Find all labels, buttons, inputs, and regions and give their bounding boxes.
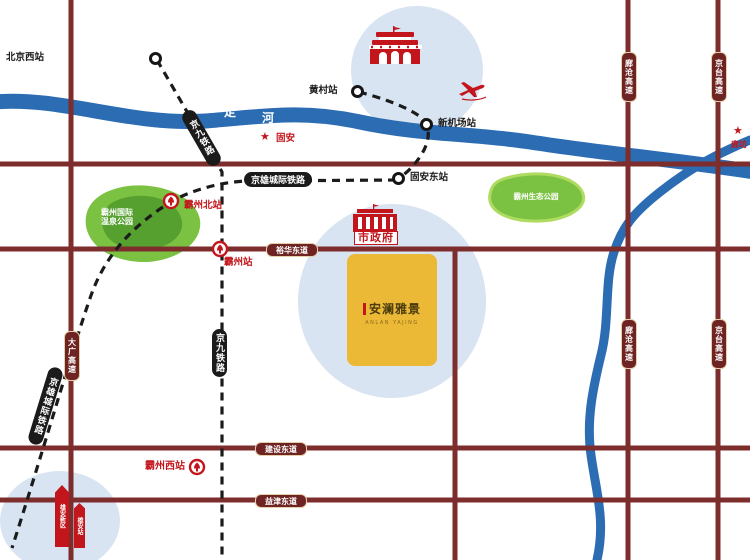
road-capsule-jingtai-south: 京台高速 [711, 319, 727, 369]
railway-station-icon-bazhou-north [162, 192, 180, 210]
project-name: 安澜雅景 [369, 300, 421, 317]
rail-capsule-jingxiong-east: 京雄城际铁路 [244, 172, 312, 187]
city-gov-icon [352, 204, 398, 232]
city-label-guan: 固安 [276, 134, 295, 144]
xiongan-banner-2-label: 雄安站 [75, 517, 84, 535]
rail-capsule-jingjiu-south: 京九铁路 [212, 329, 227, 377]
star-langfang-icon: ★ [733, 125, 743, 137]
city-label-langfang: 廊坊 [731, 141, 747, 150]
river-label-char-2: 定 [224, 106, 236, 119]
project-block: 安澜雅景 ANLAN YAJING [347, 254, 437, 366]
xiongan-banner-2: 雄安站 [74, 503, 85, 548]
park-label-hot-spring: 霸州国际 温泉公园 [88, 209, 146, 227]
road-capsule-jianshe: 建设东道 [255, 442, 307, 456]
station-label-bazhou-north: 霸州北站 [184, 201, 222, 211]
station-label-bazhou: 霸州站 [224, 258, 253, 268]
project-logo: 安澜雅景 [363, 300, 421, 317]
station-label-huangcun: 黄村站 [309, 86, 338, 96]
road-capsule-yuhua: 裕华东道 [266, 243, 318, 257]
star-guan-icon: ★ [260, 131, 270, 143]
railway-station-icon-bazhou-west [188, 458, 206, 476]
road-capsule-jingtai-north: 京台高速 [711, 52, 727, 102]
xiongan-banner-1: 雄安新区 [55, 485, 69, 547]
road-capsule-daguang: 大广高速 [64, 331, 80, 381]
project-subtitle: ANLAN YAJING [365, 320, 418, 326]
river-label-char-3: 河 [262, 112, 274, 125]
station-label-beijing-west: 北京西站 [6, 53, 44, 63]
tiananmen-icon [362, 26, 428, 64]
xiongan-banner-1-label: 雄安新区 [58, 504, 67, 528]
park-label-eco: 霸州生态公园 [498, 193, 574, 201]
road-capsule-yijin: 益津东道 [255, 494, 307, 508]
station-dot-beijing-west [149, 52, 162, 65]
station-label-bazhou-west: 霸州西站 [145, 461, 185, 472]
river-label-char-1: 永 [166, 100, 178, 113]
station-label-new-airport: 新机场站 [438, 119, 476, 129]
railway-station-icon-bazhou [211, 240, 229, 258]
station-label-guan-east: 固安东站 [410, 173, 448, 183]
city-gov-label: 市政府 [354, 231, 398, 245]
project-seal-icon [363, 303, 366, 315]
station-dot-guan-east [392, 172, 405, 185]
airplane-icon [456, 80, 488, 102]
road-capsule-langcang-north: 廊沧高速 [621, 52, 637, 102]
station-dot-huangcun [351, 85, 364, 98]
road-capsule-langcang-south: 廊沧高速 [621, 319, 637, 369]
park-label-hot-spring-line2: 温泉公园 [88, 218, 146, 227]
station-dot-new-airport [420, 118, 433, 131]
railway-jingjiu [157, 60, 222, 560]
map-canvas: 永 定 河 霸州国际 温泉公园 霸州生态公园 京九铁路 京雄城际铁路 京九铁路 … [0, 0, 750, 560]
